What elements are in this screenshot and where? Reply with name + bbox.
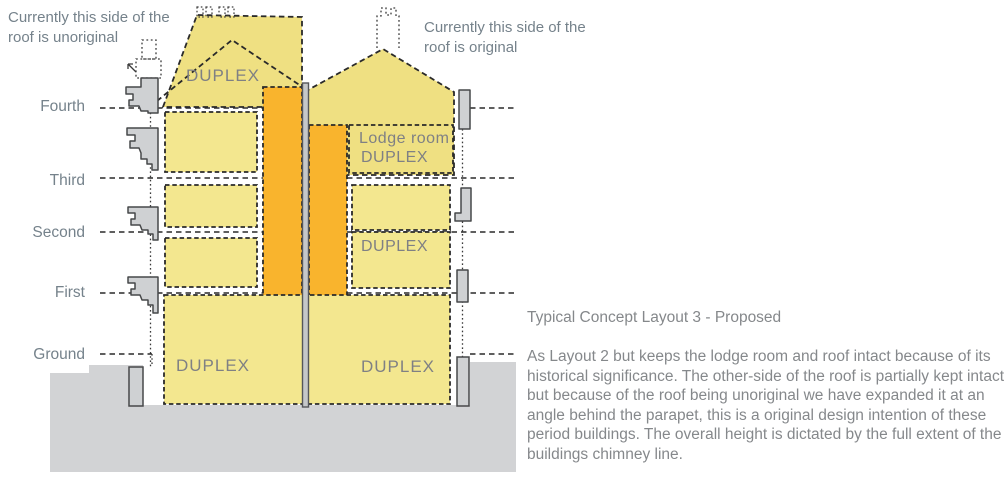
right-unit-third <box>352 185 450 230</box>
roof-duplex-label: DUPLEX <box>186 66 260 85</box>
lodge-duplex-label: DUPLEX <box>361 148 428 167</box>
left-unit-rects <box>165 112 257 287</box>
right-ground-pillar <box>457 357 469 406</box>
party-wall-chimney-line <box>303 83 309 407</box>
left-unit-fourth <box>165 112 257 172</box>
cornice-third <box>127 128 158 170</box>
right-duplex-label: DUPLEX <box>361 237 428 256</box>
bottom-left-duplex-label: DUPLEX <box>176 356 250 375</box>
floor-label-first: First <box>23 283 85 303</box>
right-band-first <box>457 270 468 302</box>
right-roof-note-line2: roof is original <box>424 38 609 58</box>
floor-label-third: Third <box>23 171 85 191</box>
chimney-arrow <box>128 64 136 72</box>
right-parapet-profiles <box>455 90 471 302</box>
right-roof-note: Currently this side of the roof is origi… <box>424 18 609 58</box>
left-unit-second <box>165 238 257 287</box>
floor-label-second: Second <box>23 223 85 243</box>
left-roof-note-line2: roof is unoriginal <box>8 28 193 48</box>
concept-title: Typical Concept Layout 3 - Proposed <box>527 308 781 328</box>
right-parapet <box>459 90 470 129</box>
right-cornice-third <box>455 188 471 221</box>
section-diagram-page: Currently this side of the roof is unori… <box>0 0 1006 479</box>
bottom-right-duplex-label: DUPLEX <box>361 357 435 376</box>
cornice-first <box>128 277 158 313</box>
floor-label-fourth: Fourth <box>23 97 85 117</box>
lodge-room-label: Lodge room <box>359 129 449 148</box>
cornice-second <box>128 207 158 240</box>
concept-description: As Layout 2 but keeps the lodge room and… <box>527 347 1006 464</box>
left-roof-note-line1: Currently this side of the <box>8 8 193 28</box>
left-unit-third <box>165 185 257 227</box>
left-cornice-profiles <box>126 78 158 313</box>
left-ground-pillar <box>129 367 143 406</box>
left-roof-note: Currently this side of the roof is unori… <box>8 8 193 48</box>
floor-label-ground: Ground <box>23 345 85 365</box>
right-roof-note-line1: Currently this side of the <box>424 18 609 38</box>
gable-chimney-outline <box>377 8 399 48</box>
